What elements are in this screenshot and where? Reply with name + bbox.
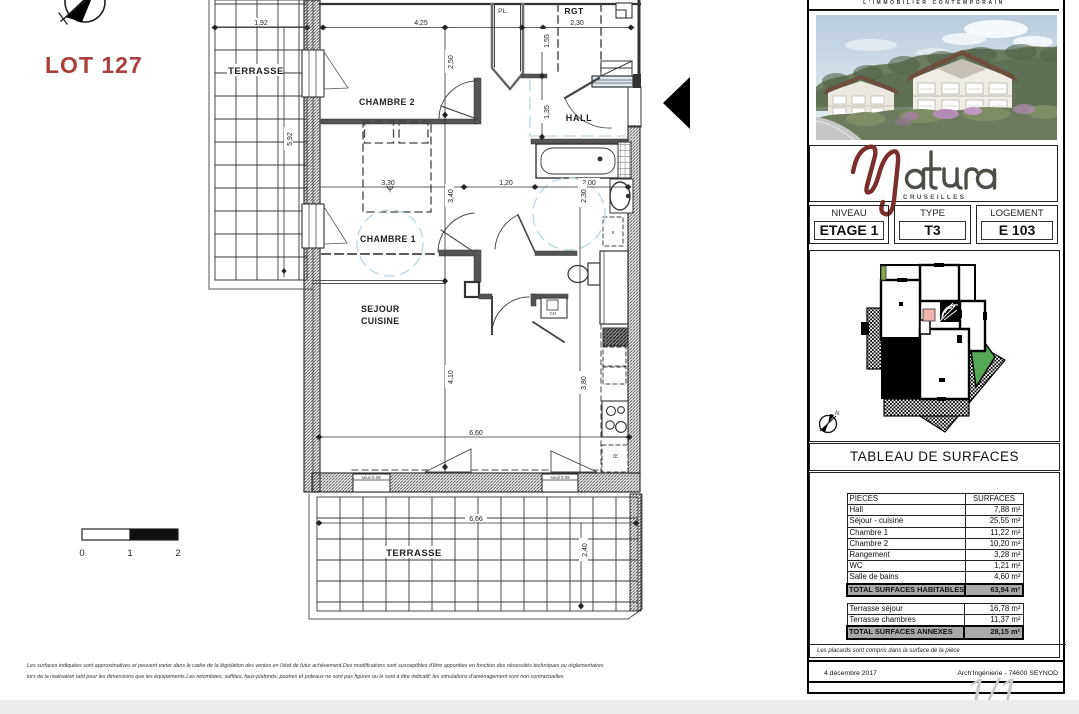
svg-text:2,40: 2,40: [582, 543, 589, 557]
svg-text:CUISINE: CUISINE: [361, 316, 399, 326]
svg-text:CH: CH: [550, 311, 557, 316]
svg-text:3,30: 3,30: [381, 180, 395, 187]
svg-text:CHAMBRE 2: CHAMBRE 2: [359, 97, 415, 107]
svg-text:CRUSEILLES: CRUSEILLES: [903, 194, 966, 201]
svg-text:4,25: 4,25: [414, 20, 428, 27]
svg-text:1,55: 1,55: [544, 34, 551, 48]
svg-text:Les surfaces indiquées sont ap: Les surfaces indiquées sont approximativ…: [27, 663, 604, 669]
svg-text:3,80: 3,80: [581, 376, 588, 390]
svg-text:TERRASSE: TERRASSE: [386, 548, 442, 559]
svg-text:lors de la réalisation tant po: lors de la réalisation tant pour les dim…: [27, 674, 564, 680]
svg-text:1,20: 1,20: [499, 180, 513, 187]
svg-text:HALL: HALL: [566, 113, 592, 123]
svg-text:1,35: 1,35: [544, 105, 551, 119]
svg-text:6,66: 6,66: [469, 516, 483, 523]
svg-text:5,92: 5,92: [287, 132, 294, 146]
svg-text:2: 2: [175, 548, 180, 559]
svg-text:2,30: 2,30: [570, 20, 584, 27]
svg-text:4,10: 4,10: [448, 370, 455, 384]
svg-text:seuil 0.09: seuil 0.09: [550, 475, 570, 480]
svg-text:TERRASSE: TERRASSE: [228, 66, 284, 77]
svg-text:seuil 0.09: seuil 0.09: [361, 475, 381, 480]
svg-text:2,50: 2,50: [448, 55, 455, 69]
svg-text:6,60: 6,60: [469, 430, 483, 437]
svg-text:PL.: PL.: [498, 8, 508, 15]
svg-text:3,40: 3,40: [448, 189, 455, 203]
svg-text:R: R: [614, 453, 620, 458]
svg-text:RGT: RGT: [564, 6, 584, 16]
svg-text:N: N: [835, 411, 840, 417]
svg-text:CHAMBRE 1: CHAMBRE 1: [360, 234, 416, 244]
svg-text:2,30: 2,30: [581, 189, 588, 203]
svg-text:SEJOUR: SEJOUR: [361, 304, 400, 314]
svg-text:1: 1: [127, 548, 132, 559]
svg-text:LOT 127: LOT 127: [45, 52, 143, 78]
svg-text:0: 0: [79, 548, 84, 559]
svg-text:1,92: 1,92: [254, 20, 268, 27]
